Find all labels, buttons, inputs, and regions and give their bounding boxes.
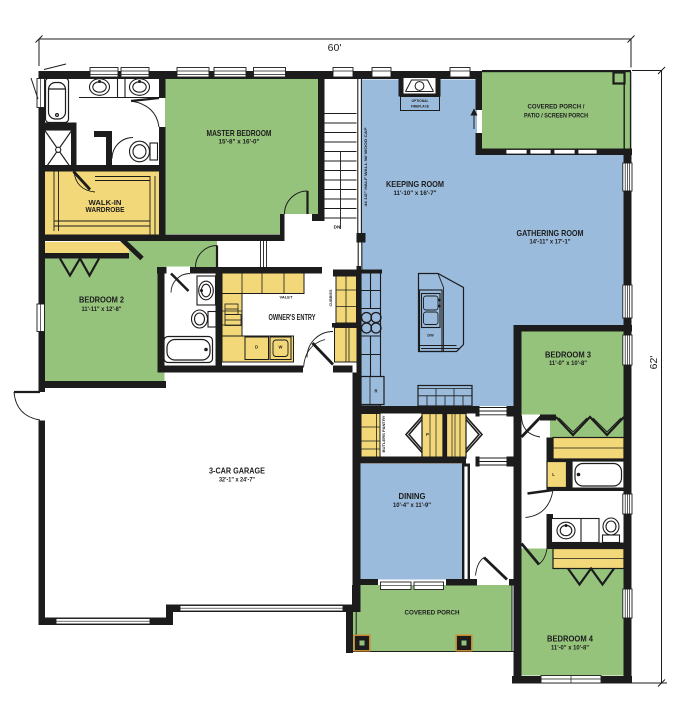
svg-text:PATIO / SCREEN PORCH: PATIO / SCREEN PORCH — [524, 113, 588, 120]
svg-text:DN: DN — [334, 225, 341, 230]
svg-text:W: W — [279, 345, 283, 350]
svg-text:VALET: VALET — [280, 296, 294, 300]
svg-text:32'-1" x 24'-7": 32'-1" x 24'-7" — [219, 477, 255, 484]
svg-text:11'-0" x 10'-8": 11'-0" x 10'-8" — [549, 360, 587, 367]
svg-text:11'-11" x 12'-8": 11'-11" x 12'-8" — [82, 306, 122, 313]
svg-text:OWNER'S ENTRY: OWNER'S ENTRY — [269, 313, 316, 322]
svg-text:OPTIONAL: OPTIONAL — [412, 99, 430, 103]
svg-text:CUBBIES: CUBBIES — [329, 289, 333, 306]
svg-text:3-CAR GARAGE: 3-CAR GARAGE — [209, 466, 265, 476]
svg-text:11'-10" x 16'-7": 11'-10" x 16'-7" — [394, 190, 437, 197]
svg-text:P: P — [426, 432, 429, 437]
svg-text:DINING: DINING — [399, 491, 426, 501]
svg-text:15'-8" x 16'-0": 15'-8" x 16'-0" — [219, 139, 260, 146]
svg-text:62': 62' — [648, 356, 660, 370]
svg-text:BEDROOM 3: BEDROOM 3 — [545, 350, 591, 360]
svg-text:L: L — [552, 472, 555, 477]
svg-text:COVERED PORCH: COVERED PORCH — [405, 610, 460, 617]
svg-text:BEDROOM 2: BEDROOM 2 — [79, 295, 124, 305]
svg-text:R: R — [374, 389, 377, 394]
svg-text:D: D — [255, 345, 258, 350]
svg-text:MASTER BEDROOM: MASTER BEDROOM — [207, 128, 272, 138]
svg-text:BEDROOM 4: BEDROOM 4 — [547, 634, 593, 644]
svg-text:60': 60' — [328, 42, 342, 54]
svg-text:44 1/2" HALF WALL W/ WOOD CAP: 44 1/2" HALF WALL W/ WOOD CAP — [363, 127, 368, 206]
svg-text:WARDROBE: WARDROBE — [86, 205, 125, 214]
svg-text:BUTLERS PANTRY: BUTLERS PANTRY — [381, 415, 386, 452]
svg-text:10'-4" x 11'-9": 10'-4" x 11'-9" — [393, 502, 431, 509]
svg-text:KEEPING ROOM: KEEPING ROOM — [386, 179, 444, 189]
svg-text:11'-0" x 10'-8": 11'-0" x 10'-8" — [551, 645, 589, 652]
svg-text:GATHERING ROOM: GATHERING ROOM — [517, 228, 584, 238]
svg-text:FIREPLACE: FIREPLACE — [411, 105, 429, 109]
svg-text:14'-11" x 17'-1": 14'-11" x 17'-1" — [530, 239, 571, 246]
svg-text:COVERED PORCH /: COVERED PORCH / — [528, 104, 585, 111]
svg-text:DW: DW — [427, 334, 434, 338]
